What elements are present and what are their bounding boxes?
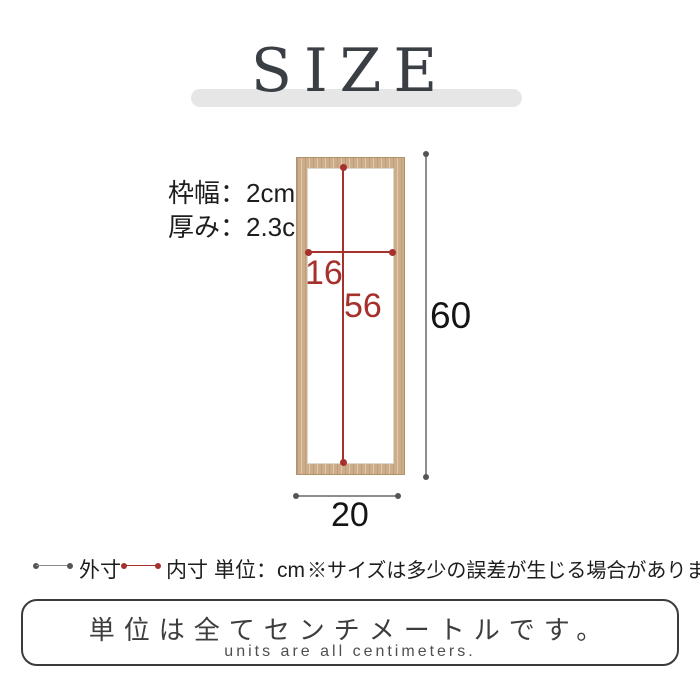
tolerance-note: ※サイズは多少の誤差が生じる場合があります。 [307, 554, 700, 583]
inner-dim-legend-line [121, 562, 161, 569]
outer-width-right-dot [395, 493, 401, 499]
page-title: SIZE [0, 40, 700, 103]
footer-note-en: units are all centimeters. [23, 643, 677, 661]
inner-width-line [307, 251, 393, 253]
legend-gray-right-dot [67, 563, 73, 569]
unit-label: 単位：cm [214, 554, 305, 584]
outer-height-bottom-dot [423, 474, 429, 480]
outer-width-value: 20 [331, 498, 369, 532]
frame-width-label: 枠幅：2cm [168, 173, 295, 210]
footer-note-box: 単位は全てセンチメートルです。 units are all centimeter… [21, 599, 679, 666]
inner-dim-label: 内寸 [166, 554, 208, 584]
outer-dim-legend-line [33, 562, 73, 569]
inner-height-value: 56 [344, 289, 382, 323]
outer-height-top-dot [423, 151, 429, 157]
legend-gray-line [36, 565, 70, 567]
inner-height-bottom-dot [340, 459, 347, 466]
outer-height-line [425, 154, 427, 477]
legend-red-line [124, 565, 158, 567]
size-infographic: SIZE 枠幅：2cm 厚み：2.3cm 16 56 60 20 外寸 内寸 単… [0, 0, 700, 700]
legend-red-right-dot [155, 563, 161, 569]
footer-note-jp: 単位は全てセンチメートルです。 [23, 610, 677, 647]
outer-width-left-dot [293, 493, 299, 499]
inner-width-right-dot [389, 249, 396, 256]
inner-width-value: 16 [305, 256, 343, 290]
inner-height-top-dot [340, 164, 347, 171]
outer-dim-label: 外寸 [79, 554, 121, 584]
outer-height-value: 60 [430, 297, 471, 334]
frame-thickness-label: 厚み：2.3cm [168, 207, 317, 244]
